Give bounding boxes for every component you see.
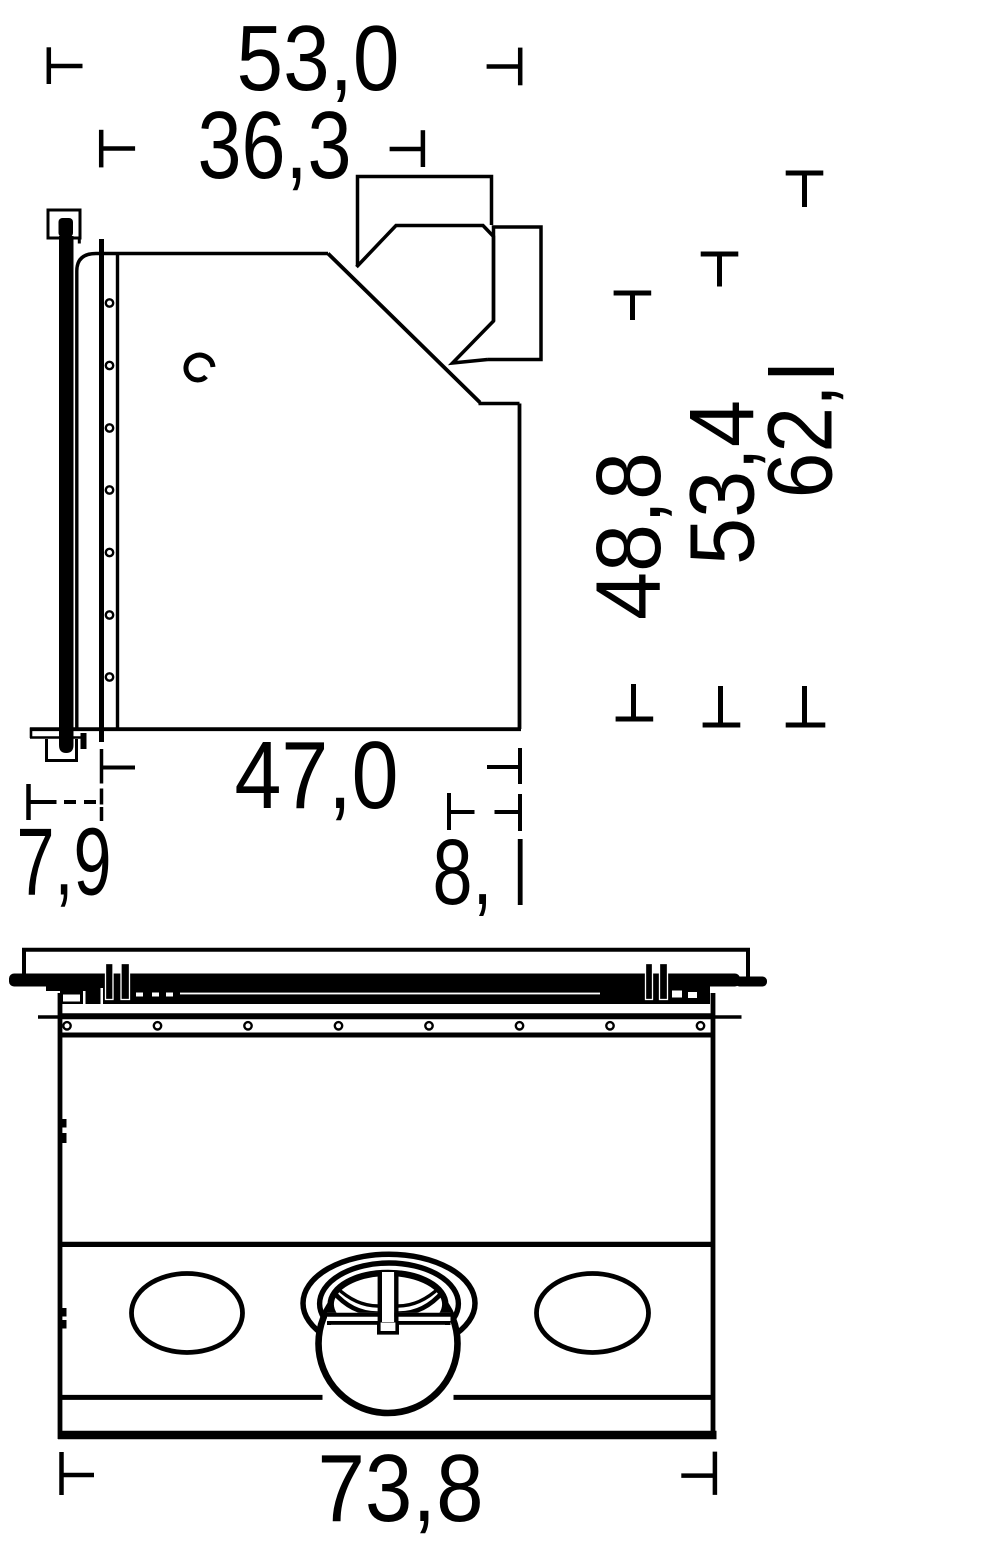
svg-text:36,3: 36,3 [198,92,352,199]
svg-text:7,9: 7,9 [17,809,112,916]
svg-text:47,0: 47,0 [235,722,399,829]
svg-text:62,: 62, [750,384,852,498]
svg-text:48,8: 48,8 [578,452,680,620]
svg-text:73,8: 73,8 [318,1435,484,1541]
svg-text:8,: 8, [433,820,493,924]
